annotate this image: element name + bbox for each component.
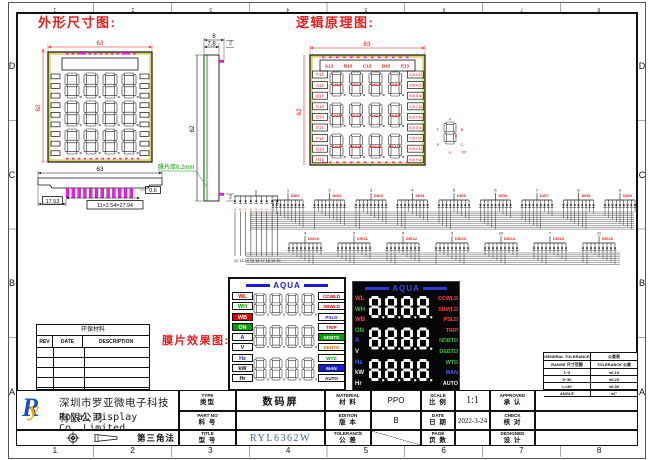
segment (410, 308, 413, 316)
diode-symbol (610, 248, 612, 251)
drawing-circle (267, 314, 269, 316)
segment (288, 378, 296, 380)
annunciator-sbwld: SBWLD (318, 302, 345, 310)
segment (371, 378, 378, 381)
logic-left-label: B14 (316, 93, 324, 98)
segment (387, 347, 394, 350)
segment (371, 296, 378, 299)
dim-arrow (149, 46, 152, 48)
diode-symbol (512, 248, 514, 251)
drawing-rect (336, 162, 339, 164)
dim-arrow (38, 203, 41, 205)
segment (304, 313, 312, 315)
gt-row: 1~5±0.15 (544, 369, 637, 376)
diode-symbol (332, 205, 334, 208)
drawing-rect (107, 158, 110, 160)
tb-value-check (535, 411, 638, 430)
segment (352, 103, 361, 106)
diode-symbol (377, 205, 379, 208)
pin-number: 2 (353, 231, 356, 236)
drawing-circle (363, 125, 365, 127)
drawing-rect (392, 162, 395, 164)
segment (296, 337, 298, 345)
segment (378, 361, 381, 369)
diode-symbol (463, 248, 465, 251)
diode-symbol (611, 205, 613, 208)
diode-symbol (570, 205, 572, 208)
segment (133, 142, 136, 152)
diode-symbol (349, 248, 351, 251)
drawing-circle (99, 152, 101, 154)
logic-left-label: F14 (316, 136, 324, 141)
segment (369, 330, 372, 338)
eco-empty-row (37, 348, 149, 358)
pin-number: 5 (453, 188, 456, 193)
segment (444, 124, 446, 132)
segment (304, 378, 312, 380)
engineering-drawing-page: 12345678 12345678 DCBA DCBA 63626317.531… (0, 0, 650, 460)
segment (122, 142, 125, 152)
segment (332, 72, 341, 75)
projection-method-label: 第三角法 (137, 432, 175, 444)
dim-logic-height: 62 (296, 108, 303, 116)
drawing-rect (78, 188, 81, 198)
diode-symbol (296, 248, 298, 251)
diode-symbol (408, 205, 410, 208)
col-header-description: DESCRIPTION (83, 336, 149, 347)
drawing-rect (137, 158, 140, 160)
segment (272, 335, 280, 337)
segment (394, 298, 397, 306)
drawing-rect (84, 158, 87, 160)
tb-label-cn: 材 料 (339, 400, 357, 407)
dim-arrow (221, 39, 224, 41)
segment (426, 339, 429, 347)
drawing-rect (118, 188, 121, 198)
segment (288, 326, 296, 328)
gt-title-en: GENERAL TOLERANCE (544, 353, 591, 360)
diode-symbol (502, 205, 504, 208)
drawing-rect (51, 84, 60, 89)
drawing-circle (402, 125, 404, 127)
segment (105, 151, 115, 154)
diode-symbol (457, 205, 459, 208)
segment (387, 315, 394, 318)
segment (387, 337, 394, 340)
segment (95, 142, 98, 152)
segment (67, 140, 77, 143)
pin-number: 8 (577, 188, 580, 193)
gt-tolerance: ±2° (591, 390, 637, 396)
brand-bar-left (365, 287, 389, 290)
segment (312, 337, 314, 345)
tb-label-cn: 版 本 (339, 420, 357, 427)
segref-c: C (461, 142, 464, 147)
tb-value-page (455, 430, 490, 446)
drawing-circle (299, 314, 301, 316)
segment (387, 306, 394, 309)
membrane-render-white: AQUA WLWHWBONAVHzkWHr CCWLDSBWLDPSLDTRIP… (228, 277, 346, 391)
drawing-circle (402, 156, 404, 158)
drawing-circle (344, 156, 346, 158)
segment (84, 114, 87, 124)
drawing-rect (140, 103, 149, 108)
gt-title-row: GENERAL TOLERANCE 公差表 (544, 353, 637, 361)
segment (426, 308, 429, 316)
segment (133, 114, 136, 124)
diode-symbol (468, 205, 470, 208)
dim-arrow (159, 172, 162, 174)
dig-label: DIG16 (602, 237, 613, 241)
diode-symbol (447, 248, 449, 251)
drawing-circle (299, 346, 301, 348)
diode-symbol (498, 205, 500, 208)
drawing-circle (363, 156, 365, 158)
diode-symbol (525, 205, 527, 208)
segment (270, 360, 272, 368)
diode-symbol (394, 248, 396, 251)
segment (288, 345, 296, 347)
segment (133, 75, 136, 85)
digit-grid-dark (369, 296, 433, 386)
annunciator-on: ON (232, 323, 253, 331)
pin-number: 6 (494, 188, 497, 193)
tb-label-designed: DESIGNED设 计 (490, 430, 535, 446)
tb-label-cn: 承 认 (504, 400, 522, 407)
segment (95, 114, 98, 124)
dig-label: DIG6 (499, 194, 508, 198)
general-tolerance-table: GENERAL TOLERANCE 公差表 RANGE 尺寸范围 TOLERAN… (543, 352, 638, 390)
drawing-rect (140, 74, 149, 79)
segment (65, 75, 68, 85)
segment (410, 371, 413, 379)
drawing-rect (51, 103, 60, 108)
pin-number: 9 (402, 231, 405, 236)
drawing-circle (344, 94, 346, 96)
segment (105, 123, 115, 126)
dim-arrow (38, 172, 41, 174)
segment (312, 370, 314, 378)
segref-dp: DP (462, 151, 467, 155)
diode-symbol (604, 205, 606, 208)
segment (280, 360, 282, 368)
logic-right-label: H15 H16 (409, 158, 422, 162)
segment (385, 339, 388, 347)
drawing-rect (66, 188, 69, 198)
diode-symbol (536, 205, 538, 208)
dim-tail-bottom: 2 (229, 195, 232, 201)
segment (454, 124, 456, 132)
brand-row: AQUA (230, 281, 344, 290)
drawing-circle (118, 124, 120, 126)
segment (410, 330, 413, 338)
segment (270, 370, 272, 378)
segment (403, 328, 410, 331)
segment (286, 370, 288, 378)
drawing-rect (140, 93, 149, 98)
drawing-rect (101, 188, 104, 198)
diode-symbol (615, 205, 617, 208)
seg-letter: G (266, 208, 269, 212)
segment (124, 112, 134, 115)
diode-symbol (626, 205, 628, 208)
drawing-rect (48, 52, 152, 162)
drawing-rect (95, 188, 98, 198)
brand-text: AQUA (273, 281, 301, 290)
gt-title-cn: 公差表 (591, 353, 637, 360)
segment (302, 327, 304, 335)
col-header-rev: REV (37, 336, 53, 347)
tb-value-title: RYL6362W (236, 430, 325, 446)
diode-symbol (292, 248, 294, 251)
segref-d: D (449, 150, 452, 155)
drawing-rect (133, 53, 136, 55)
segment (302, 370, 304, 378)
segment (65, 103, 68, 113)
annunciator-man: MAN (318, 364, 345, 372)
annunciator-auto: AUTO (434, 380, 458, 388)
diode-symbol (341, 248, 343, 251)
segment (86, 101, 96, 104)
segment (312, 327, 314, 335)
segment (332, 94, 341, 97)
dig-label: DIG14 (504, 237, 516, 241)
eco-material-table: 环保材料 REV DATE DESCRIPTION (36, 324, 150, 390)
segment (264, 327, 266, 335)
segment (114, 114, 117, 124)
annunciator-trip: TRIP (434, 327, 458, 335)
dig-label: DIG4 (416, 194, 426, 198)
logic-digit-label: DIG4 (390, 82, 400, 87)
drawing-rect (131, 158, 134, 160)
diode-symbol (500, 248, 502, 251)
drawing-rect (357, 57, 360, 59)
drawing-rect (350, 162, 353, 164)
annunciator-debtd: DEBTD (434, 348, 458, 356)
drawing-circle (99, 96, 101, 98)
logic-left-label: G14 (316, 146, 325, 151)
segment (371, 328, 378, 331)
segment (419, 337, 426, 340)
segment (419, 328, 426, 331)
annunciator-wl: WL (232, 292, 253, 300)
diode-symbol (566, 205, 568, 208)
diode-symbol (279, 205, 281, 208)
segment (122, 114, 125, 124)
tb-label-date: DATE日 期 (421, 411, 455, 430)
segment (256, 313, 264, 315)
drawing-rect (140, 122, 149, 127)
tb-label-cn: 日 期 (429, 420, 447, 427)
tb-value-date: 2022-3-24 (455, 411, 490, 430)
segment (254, 327, 256, 335)
drawing-rect (107, 188, 110, 198)
segment (378, 298, 381, 306)
segment (371, 359, 378, 362)
gt-header-tolerance: TOLERANCE 公差 (591, 361, 637, 368)
segment (254, 337, 256, 345)
segment (378, 330, 381, 338)
segment (302, 305, 304, 313)
annunciator-wh: WH (232, 302, 253, 310)
diode-symbol (541, 248, 543, 251)
segment (394, 371, 397, 379)
diode-symbol (483, 205, 485, 208)
segment (378, 371, 381, 379)
digit-grid-white (253, 293, 317, 390)
tb-value-edition: B (371, 411, 421, 430)
eco-empty-row (37, 358, 149, 368)
diode-symbol (294, 205, 296, 208)
tb-value-type: 数码屏 (236, 390, 325, 411)
diode-symbol (362, 205, 364, 208)
seg-letter: E (255, 208, 257, 212)
segment (352, 94, 361, 97)
drawing-rect (101, 158, 104, 160)
dig-label: DIG2 (333, 194, 342, 198)
cell-description (85, 378, 149, 387)
diode-symbol (565, 248, 567, 251)
drawing-rect (105, 53, 108, 55)
segment (286, 305, 288, 313)
diode-symbol (459, 248, 461, 251)
dim-side-height: 62 (190, 125, 196, 132)
logic-top-label: A13 (325, 64, 334, 69)
segment (280, 305, 282, 313)
diode-symbol (304, 248, 306, 251)
segment (304, 368, 312, 370)
drawing-circle (383, 125, 385, 127)
segment (403, 306, 410, 309)
logic-digit-label: DIG11 (370, 144, 382, 149)
segref-a: A (449, 117, 452, 122)
diode-symbol (443, 248, 445, 251)
drawing-rect (119, 158, 122, 160)
cell-date (54, 368, 85, 377)
segment (387, 369, 394, 372)
dim-arrow (137, 197, 140, 199)
drawing-rect (406, 57, 409, 59)
diode-symbol (418, 248, 420, 251)
dig-label: DIG7 (540, 194, 549, 198)
cell-rev (37, 378, 54, 387)
segment (371, 134, 380, 137)
segment (124, 129, 134, 132)
tb-label-cn: 型 号 (199, 438, 217, 445)
segment (286, 327, 288, 335)
seg-letter: A (234, 208, 236, 212)
diode-symbol (410, 248, 412, 251)
segment (426, 361, 429, 369)
segment (288, 368, 296, 370)
drawing-rect (66, 53, 69, 55)
diode-symbol (582, 248, 584, 251)
segment (369, 361, 372, 369)
tb-label-cn: 比 例 (429, 400, 447, 407)
drawing-rect (140, 84, 149, 89)
drawing-circle (402, 94, 404, 96)
diode-symbol (494, 205, 496, 208)
segment (387, 296, 394, 299)
diode-symbol (553, 248, 555, 251)
diode-symbol (336, 205, 338, 208)
cell-rev (37, 358, 54, 367)
eco-empty-row (37, 378, 149, 388)
segment (369, 308, 372, 316)
diode-symbol (355, 205, 357, 208)
drawing-circle (382, 379, 384, 381)
annunciator-auto: AUTO (318, 374, 345, 382)
segment (76, 142, 79, 152)
segment (410, 298, 413, 306)
drawing-rect (322, 162, 325, 164)
drawing-rect (357, 162, 360, 164)
diode-symbol (574, 205, 576, 208)
segment (76, 103, 79, 113)
drawing-circle (137, 96, 139, 98)
segment (86, 73, 96, 76)
diode-symbol (484, 248, 486, 251)
logic-top-label: B13 (344, 64, 353, 69)
diode-symbol (361, 248, 363, 251)
segment (304, 303, 312, 305)
drawing-circle (398, 379, 400, 381)
diode-symbol (488, 248, 490, 251)
diode-symbol (343, 205, 345, 208)
segment (371, 103, 380, 106)
dig-label: DIG9 (623, 194, 632, 198)
diode-symbol (540, 205, 542, 208)
tb-label-cn: 公 差 (339, 438, 357, 445)
drawing-rect (312, 57, 424, 164)
diode-symbol (532, 205, 534, 208)
diode-symbol (496, 248, 498, 251)
drawing-circle (363, 94, 365, 96)
segment (387, 359, 394, 362)
tb-label-en: PAGE (432, 432, 445, 437)
annunciator-wtd: WTD (318, 354, 345, 362)
drawing-rect (50, 54, 151, 161)
segment (304, 326, 312, 328)
eco-table-title: 环保材料 (37, 325, 149, 336)
gt-row: ANGLE±2° (544, 390, 637, 397)
segment (286, 360, 288, 368)
diode-symbol (402, 248, 404, 251)
diode-symbol (325, 205, 327, 208)
diode-symbol (557, 248, 559, 251)
segment (124, 123, 134, 126)
drawing-rect (51, 74, 60, 79)
diode-symbol (266, 201, 268, 204)
segment (391, 94, 400, 97)
segment (105, 101, 115, 104)
segment (391, 103, 400, 106)
annunciator-ccwld: CCWLD (434, 295, 458, 303)
diode-symbol (509, 205, 511, 208)
segment (105, 95, 115, 98)
diode-symbol (445, 205, 447, 208)
cone-projection-icon (95, 435, 117, 442)
drawing-rect (111, 53, 114, 55)
tb-label-en: DESIGNED (501, 432, 525, 437)
segment (65, 142, 68, 152)
drawing-rect (399, 57, 402, 59)
diode-symbol (234, 201, 236, 204)
diode-symbol (366, 205, 368, 208)
segment (371, 347, 378, 350)
segment (401, 330, 404, 338)
seg-letter: C (245, 208, 248, 212)
